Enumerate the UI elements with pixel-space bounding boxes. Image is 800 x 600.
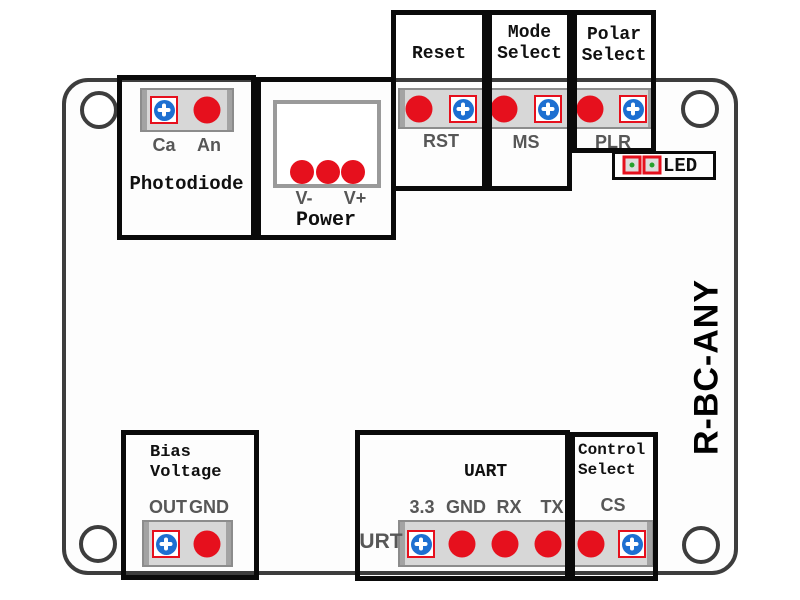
reset-box bbox=[391, 10, 487, 191]
pcb-diagram: Photodiode Power Reset Mode Select Polar… bbox=[0, 0, 800, 600]
control-select-title-line2: Select bbox=[578, 461, 636, 479]
mode-select-pin-label: MS bbox=[513, 132, 540, 153]
polar-select-title-line2: Select bbox=[572, 46, 656, 66]
mode-select-title-line1: Mode bbox=[487, 23, 572, 43]
bias-voltage-title-line2: Voltage bbox=[150, 463, 221, 482]
uart-rx-label: RX bbox=[496, 497, 521, 518]
bias-out-label: OUT bbox=[149, 497, 187, 518]
polar-select-pin-label: PLR bbox=[595, 132, 631, 153]
uart-title: UART bbox=[464, 462, 507, 482]
mounting-hole-top-right bbox=[681, 90, 719, 128]
uart-33v-label: 3.3 bbox=[409, 497, 434, 518]
uart-gnd-label: GND bbox=[446, 497, 486, 518]
reset-pin-label: RST bbox=[423, 131, 459, 152]
mounting-hole-top-left bbox=[80, 91, 118, 129]
uart-side-label: URT bbox=[359, 530, 402, 554]
power-vminus-label: V- bbox=[295, 188, 312, 209]
mounting-hole-bottom-right bbox=[682, 526, 720, 564]
bias-gnd-label: GND bbox=[189, 497, 229, 518]
polar-select-title-line1: Polar bbox=[572, 25, 656, 45]
control-select-title-line1: Control bbox=[578, 441, 645, 459]
photodiode-cathode-label: Ca bbox=[152, 135, 175, 156]
control-select-pin-label: CS bbox=[600, 495, 625, 516]
power-title: Power bbox=[256, 209, 396, 232]
photodiode-title: Photodiode bbox=[117, 173, 256, 195]
uart-tx-label: TX bbox=[540, 497, 563, 518]
photodiode-box bbox=[117, 75, 256, 240]
mode-select-title-line2: Select bbox=[487, 44, 572, 64]
mounting-hole-bottom-left bbox=[79, 525, 117, 563]
led-label: LED bbox=[663, 155, 697, 177]
model-label: R-BC-ANY bbox=[688, 279, 727, 455]
power-vplus-label: V+ bbox=[344, 188, 367, 209]
photodiode-anode-label: An bbox=[197, 135, 221, 156]
bias-voltage-title-line1: Bias bbox=[150, 443, 191, 462]
reset-title: Reset bbox=[391, 44, 487, 64]
